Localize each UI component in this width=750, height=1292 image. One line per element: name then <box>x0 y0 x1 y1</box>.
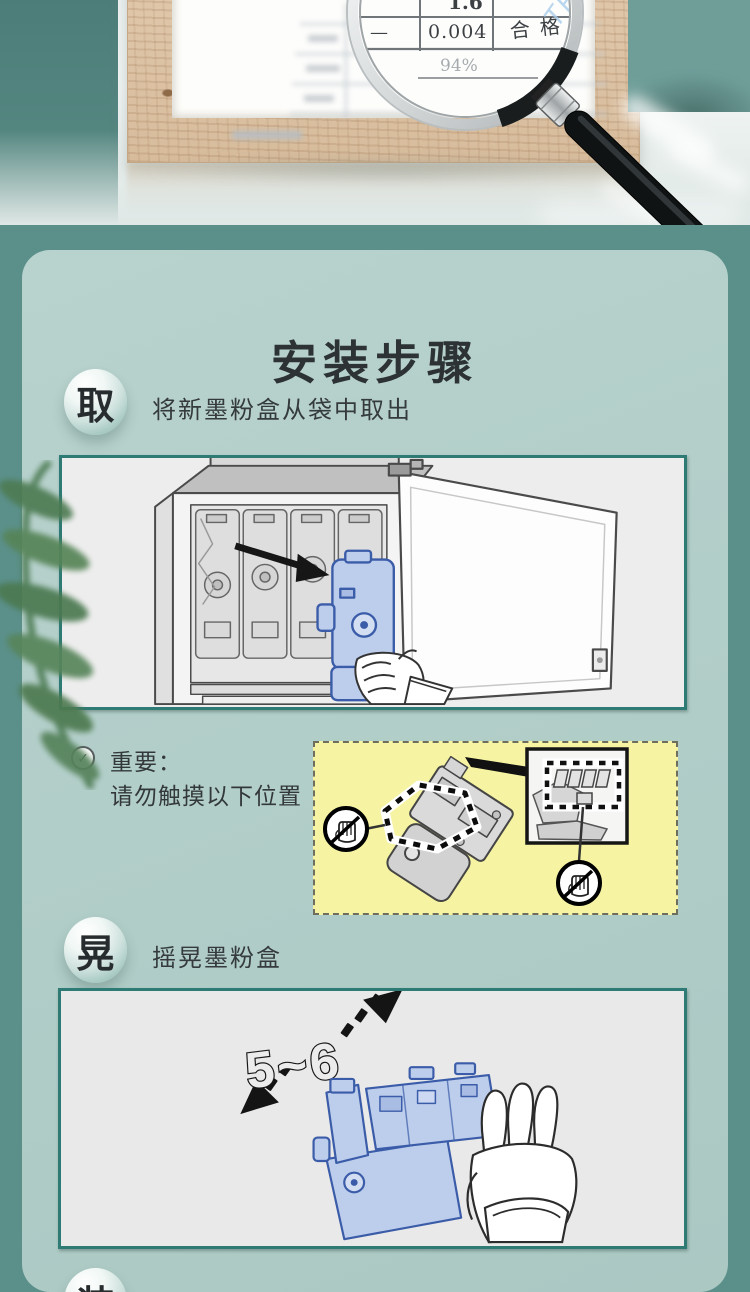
cartridge-gray <box>378 754 522 909</box>
page: 1.6 — 0.004 合格 94% TFJC 安装步骤 <box>0 0 750 1292</box>
chip-inset <box>527 749 627 843</box>
report-value-mid: 0.004 <box>428 21 487 43</box>
no-touch-icon <box>325 808 367 850</box>
step-text-shake: 摇晃墨粉盒 <box>152 938 282 973</box>
plant-leaf <box>0 460 106 790</box>
inset-pointer <box>465 757 529 777</box>
no-touch-illustration <box>315 743 676 913</box>
step-text-take: 将新墨粉盒从袋中取出 <box>152 390 412 425</box>
install-title: 安装步骤 <box>22 327 728 393</box>
toner-cartridge-blue <box>314 1063 499 1239</box>
report-dash: — <box>370 22 388 43</box>
no-touch-icon <box>558 862 600 904</box>
printer-door <box>389 460 617 702</box>
step-badge-shake-label: 晃 <box>76 923 114 978</box>
report-percent: 94% <box>440 56 478 76</box>
report-value-top: 1.6 <box>448 0 483 14</box>
step-badge-take-label: 取 <box>76 375 114 430</box>
hero-photo: 1.6 — 0.004 合格 94% TFJC <box>0 0 750 225</box>
install-card: 安装步骤 取 将新墨粉盒从袋中取出 <box>22 250 728 1292</box>
step-badge-take: 取 <box>64 369 127 435</box>
step-badge-shake: 晃 <box>64 917 127 983</box>
important-label: 重要： <box>110 743 182 777</box>
printer-illustration <box>62 458 684 707</box>
warning-note-panel <box>313 741 678 915</box>
illustration-panel-remove <box>59 455 687 710</box>
illustration-panel-shake: 5~6 <box>58 988 687 1249</box>
hand <box>468 1084 577 1243</box>
teal-band-left <box>0 0 118 225</box>
magnifying-glass-icon: 1.6 — 0.004 合格 94% TFJC <box>300 0 750 225</box>
magnifier-handle <box>529 77 722 225</box>
step-badge-install: 装 <box>64 1268 127 1292</box>
step-badge-install-label: 装 <box>76 1274 114 1292</box>
shake-illustration: 5~6 <box>61 991 684 1246</box>
important-text: 请勿触摸以下位置 <box>110 777 302 811</box>
